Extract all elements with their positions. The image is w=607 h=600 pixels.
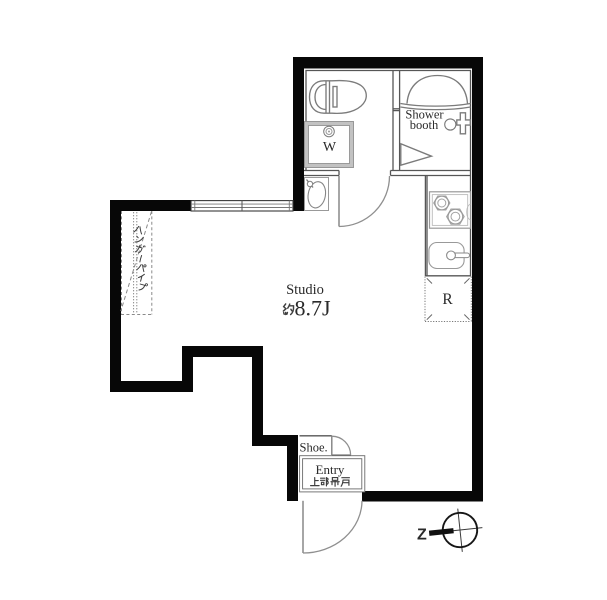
svg-text:Entry: Entry: [316, 462, 345, 477]
svg-text:R: R: [442, 291, 453, 308]
svg-text:Z: Z: [417, 527, 427, 544]
svg-text:8.7J: 8.7J: [295, 296, 332, 321]
svg-text:W: W: [323, 140, 337, 155]
svg-text:booth: booth: [410, 118, 439, 132]
svg-text:Shoe.: Shoe.: [300, 441, 328, 455]
